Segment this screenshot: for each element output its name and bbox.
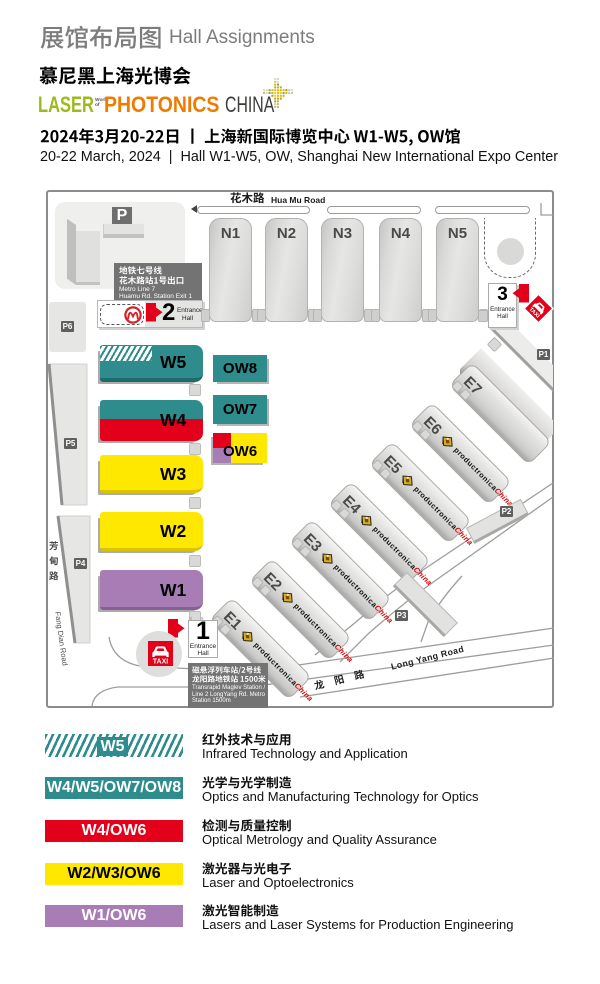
svg-text:TAXI: TAXI xyxy=(153,659,168,666)
